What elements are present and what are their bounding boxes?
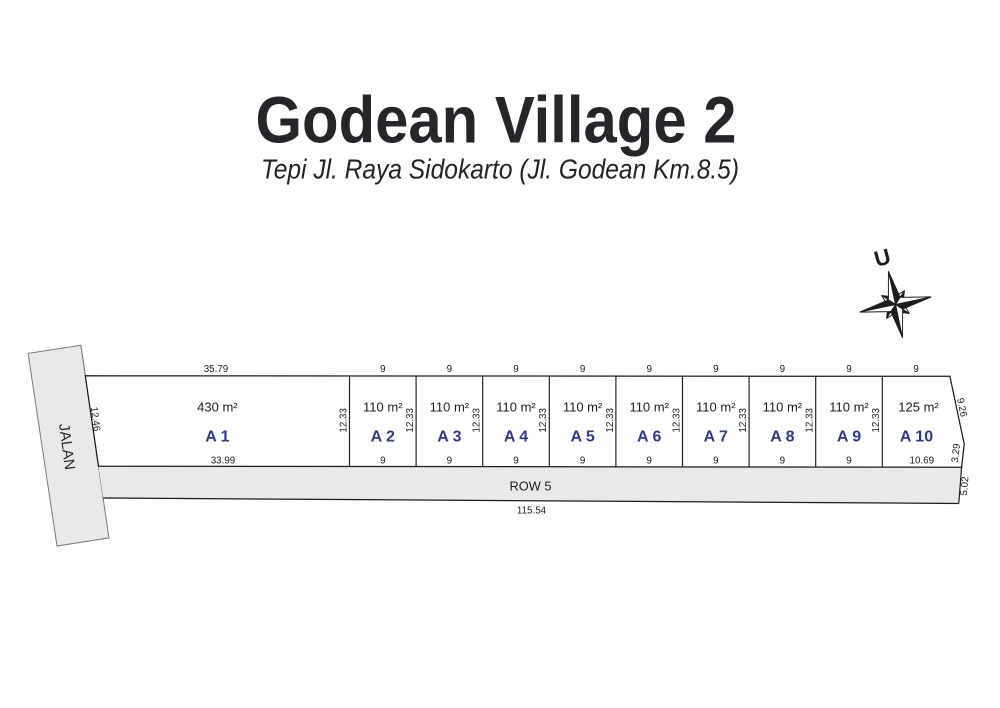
svg-text:U: U — [871, 244, 893, 272]
svg-text:12.33: 12.33 — [472, 407, 483, 432]
svg-text:110 m²: 110 m² — [763, 400, 803, 415]
svg-text:9: 9 — [646, 455, 651, 466]
svg-text:A 5: A 5 — [570, 428, 594, 445]
svg-text:Tepi Jl. Raya Sidokarto (Jl. G: Tepi Jl. Raya Sidokarto (Jl. Godean Km.8… — [261, 154, 739, 185]
svg-text:A 7: A 7 — [704, 428, 728, 445]
svg-text:9: 9 — [846, 364, 851, 375]
svg-text:12.33: 12.33 — [538, 407, 549, 432]
svg-text:9: 9 — [846, 455, 851, 466]
svg-text:9: 9 — [380, 455, 385, 466]
svg-text:115.54: 115.54 — [517, 505, 547, 516]
svg-text:A 1: A 1 — [205, 428, 229, 445]
svg-text:9: 9 — [780, 364, 785, 375]
svg-text:A 9: A 9 — [837, 428, 861, 445]
svg-text:12.33: 12.33 — [738, 407, 749, 432]
svg-text:110 m²: 110 m² — [629, 400, 669, 415]
svg-text:9: 9 — [713, 455, 718, 466]
svg-text:12.33: 12.33 — [405, 407, 416, 432]
svg-text:110 m²: 110 m² — [829, 400, 869, 415]
svg-text:3.29: 3.29 — [950, 443, 963, 463]
svg-text:12.33: 12.33 — [805, 407, 816, 432]
svg-text:9: 9 — [580, 364, 585, 375]
svg-text:12.33: 12.33 — [338, 407, 349, 432]
svg-text:12.33: 12.33 — [671, 407, 682, 432]
svg-text:9: 9 — [447, 455, 452, 466]
svg-text:5.02: 5.02 — [959, 476, 971, 496]
svg-text:110 m²: 110 m² — [496, 400, 536, 415]
svg-text:A 8: A 8 — [770, 428, 794, 445]
svg-text:430 m²: 430 m² — [197, 400, 238, 415]
svg-text:9: 9 — [447, 364, 452, 375]
svg-text:125 m²: 125 m² — [898, 400, 939, 415]
svg-text:12.33: 12.33 — [605, 407, 616, 432]
svg-text:A 4: A 4 — [504, 428, 528, 445]
svg-text:10.69: 10.69 — [910, 455, 935, 466]
svg-text:9: 9 — [646, 364, 651, 375]
svg-text:A 10: A 10 — [900, 428, 933, 445]
svg-text:9: 9 — [780, 455, 785, 466]
svg-text:A 6: A 6 — [637, 428, 661, 445]
svg-text:9: 9 — [580, 455, 585, 466]
svg-text:33.99: 33.99 — [211, 455, 236, 466]
svg-text:110 m²: 110 m² — [563, 400, 603, 415]
svg-text:A 2: A 2 — [371, 428, 395, 445]
svg-text:ROW 5: ROW 5 — [510, 478, 552, 493]
svg-text:110 m²: 110 m² — [363, 400, 403, 415]
svg-text:9: 9 — [380, 364, 385, 375]
svg-text:9: 9 — [513, 455, 518, 466]
svg-text:110 m²: 110 m² — [430, 400, 470, 415]
svg-text:Godean Village 2: Godean Village 2 — [256, 83, 737, 157]
svg-text:9: 9 — [913, 364, 918, 375]
svg-text:9: 9 — [513, 364, 518, 375]
svg-text:9: 9 — [713, 364, 718, 375]
svg-text:12.33: 12.33 — [871, 407, 882, 432]
svg-text:A 3: A 3 — [437, 428, 461, 445]
svg-text:35.79: 35.79 — [204, 364, 229, 375]
svg-text:110 m²: 110 m² — [696, 400, 736, 415]
